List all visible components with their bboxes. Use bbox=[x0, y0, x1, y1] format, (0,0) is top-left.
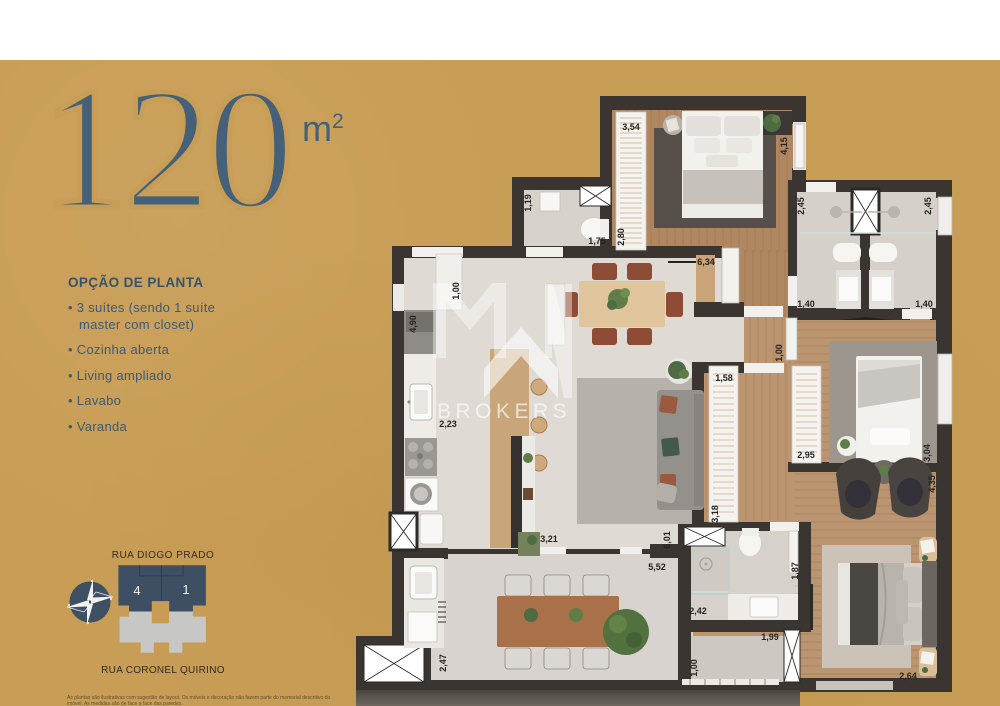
svg-text:1,40: 1,40 bbox=[797, 299, 815, 309]
svg-text:3,04: 3,04 bbox=[922, 444, 932, 462]
svg-text:3,18: 3,18 bbox=[710, 505, 720, 523]
svg-text:1: 1 bbox=[182, 582, 189, 597]
svg-text:RUA DIOGO PRADO: RUA DIOGO PRADO bbox=[112, 550, 215, 561]
svg-text:2,45: 2,45 bbox=[923, 197, 933, 215]
svg-text:RUA CORONEL QUIRINO: RUA CORONEL QUIRINO bbox=[101, 665, 225, 676]
svg-text:1,00: 1,00 bbox=[689, 659, 699, 677]
svg-text:1,58: 1,58 bbox=[715, 373, 733, 383]
svg-text:1,00: 1,00 bbox=[451, 282, 461, 300]
svg-text:2,47: 2,47 bbox=[438, 654, 448, 672]
svg-text:2,64: 2,64 bbox=[899, 671, 917, 681]
svg-text:6,01: 6,01 bbox=[662, 531, 672, 549]
svg-text:1,75: 1,75 bbox=[588, 236, 606, 246]
svg-text:3,21: 3,21 bbox=[540, 534, 558, 544]
svg-text:4,90: 4,90 bbox=[408, 315, 418, 333]
svg-text:1,00: 1,00 bbox=[774, 344, 784, 362]
svg-text:2,23: 2,23 bbox=[439, 419, 457, 429]
svg-text:2,95: 2,95 bbox=[797, 450, 815, 460]
svg-text:3,54: 3,54 bbox=[622, 122, 640, 132]
svg-text:1,19: 1,19 bbox=[523, 194, 533, 212]
svg-text:1,99: 1,99 bbox=[761, 632, 779, 642]
svg-text:BROKERS: BROKERS bbox=[437, 400, 571, 423]
svg-text:1,87: 1,87 bbox=[790, 562, 800, 580]
svg-text:6,34: 6,34 bbox=[697, 257, 715, 267]
svg-text:2,42: 2,42 bbox=[689, 606, 707, 616]
svg-text:5,52: 5,52 bbox=[648, 562, 666, 572]
svg-text:2,80: 2,80 bbox=[616, 228, 626, 246]
svg-text:4,35: 4,35 bbox=[927, 475, 937, 493]
svg-text:1,40: 1,40 bbox=[915, 299, 933, 309]
svg-text:4,15: 4,15 bbox=[779, 137, 789, 155]
svg-text:4: 4 bbox=[133, 583, 140, 598]
svg-text:2,45: 2,45 bbox=[796, 197, 806, 215]
